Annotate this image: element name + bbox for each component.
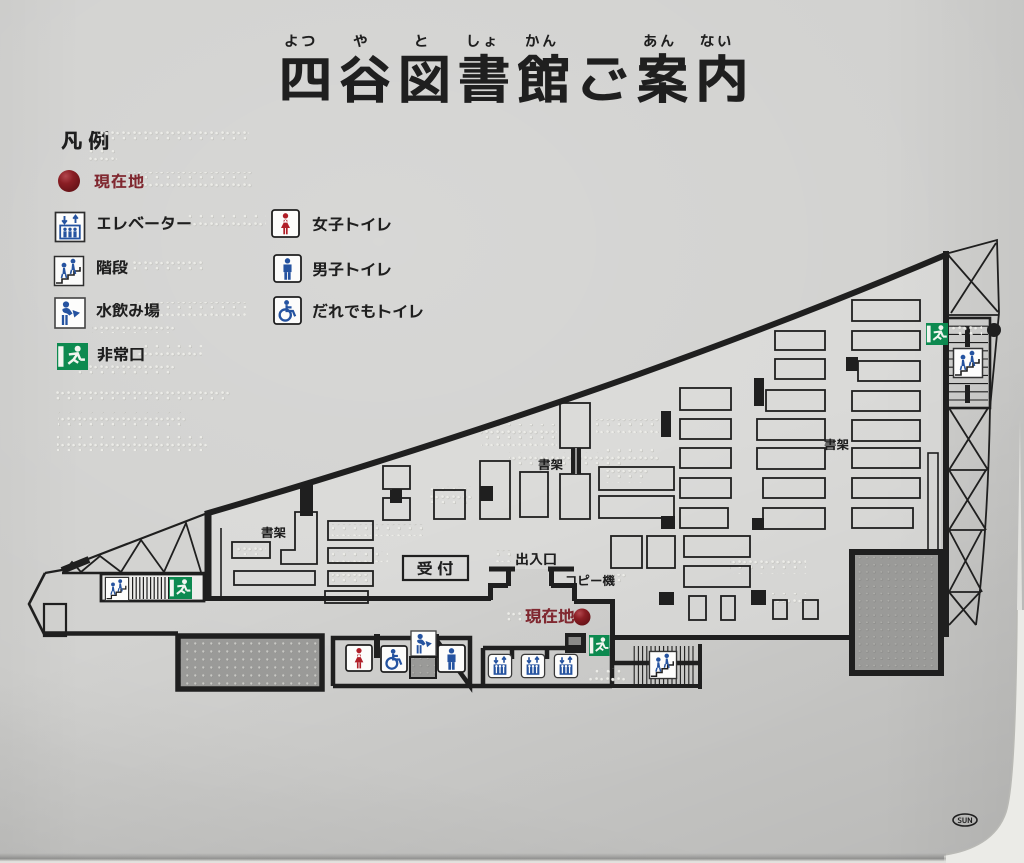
svg-text:現在地: 現在地 xyxy=(94,171,145,193)
svg-text:書架: 書架 xyxy=(824,436,850,453)
svg-text:女子トイレ: 女子トイレ xyxy=(312,214,392,236)
svg-text:SUN: SUN xyxy=(957,816,973,826)
svg-text:受 付: 受 付 xyxy=(417,558,454,580)
svg-text:現在地: 現在地 xyxy=(525,605,575,628)
svg-text:階段: 階段 xyxy=(96,257,128,279)
svg-text:あん: あん xyxy=(643,30,677,51)
svg-text:だれでもトイレ: だれでもトイレ xyxy=(312,301,424,323)
svg-text:と: と xyxy=(414,30,431,51)
svg-text:男子トイレ: 男子トイレ xyxy=(312,259,392,281)
svg-text:出入口: 出入口 xyxy=(515,550,557,569)
svg-text:エレベーター: エレベーター xyxy=(96,213,192,235)
svg-text:四谷図書館ご案内: 四谷図書館ご案内 xyxy=(279,41,755,115)
svg-text:水飲み場: 水飲み場 xyxy=(96,300,160,322)
svg-text:書架: 書架 xyxy=(538,456,564,473)
svg-text:や: や xyxy=(353,30,370,51)
svg-text:よつ: よつ xyxy=(284,30,318,51)
svg-text:ない: ない xyxy=(700,30,734,51)
svg-text:かん: かん xyxy=(525,30,559,51)
svg-text:しょ: しょ xyxy=(466,30,500,51)
svg-text:書架: 書架 xyxy=(261,524,287,541)
svg-text:コピー機: コピー機 xyxy=(565,572,616,589)
svg-text:非常口: 非常口 xyxy=(97,344,145,366)
